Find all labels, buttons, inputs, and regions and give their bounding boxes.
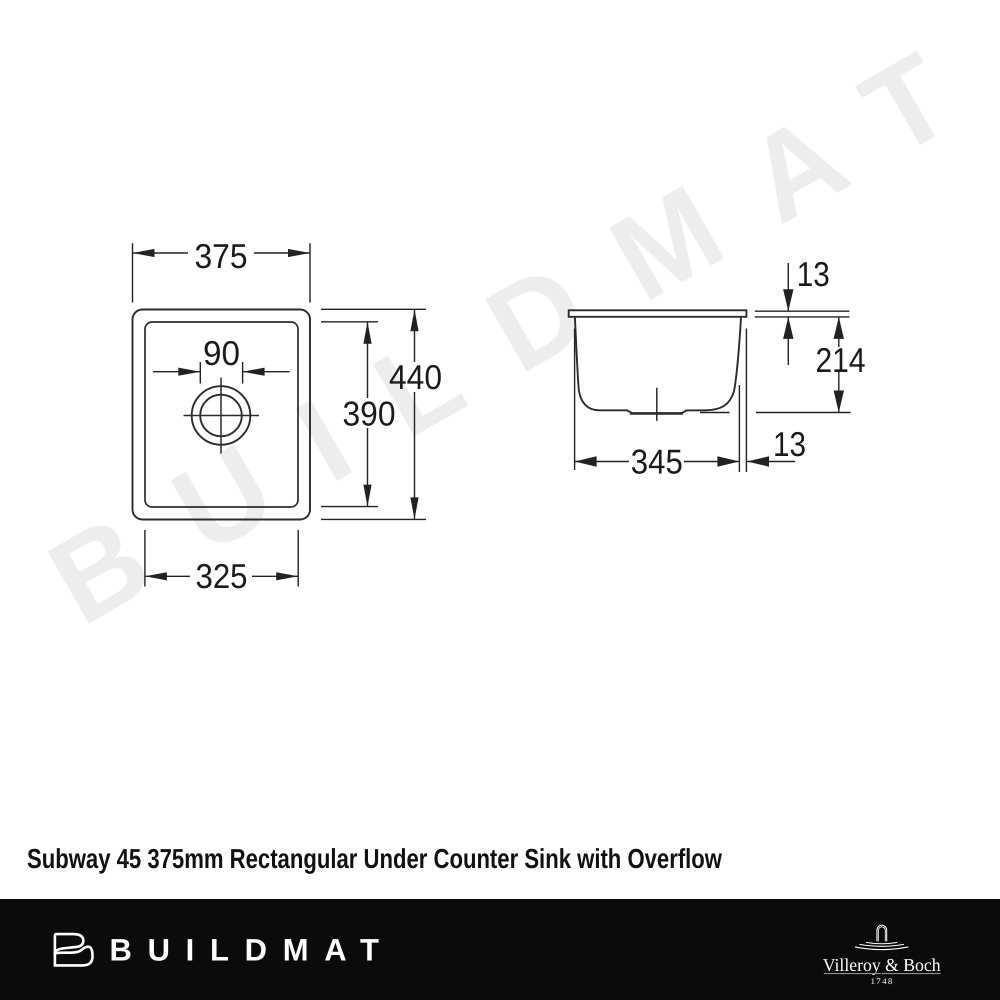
svg-text:BUILDMAT: BUILDMAT	[110, 933, 395, 968]
svg-text:90: 90	[203, 335, 240, 373]
svg-text:214: 214	[816, 342, 866, 380]
svg-text:375: 375	[195, 238, 248, 276]
svg-text:13: 13	[797, 256, 830, 294]
svg-text:13: 13	[773, 426, 806, 464]
svg-text:440: 440	[389, 359, 442, 397]
svg-text:390: 390	[343, 395, 396, 433]
svg-text:325: 325	[196, 558, 248, 596]
svg-text:Subway 45 375mm Rectangular Un: Subway 45 375mm Rectangular Under Counte…	[27, 843, 722, 874]
svg-text:1748: 1748	[871, 976, 894, 986]
svg-text:345: 345	[631, 443, 683, 481]
svg-text:Villeroy & Boch: Villeroy & Boch	[823, 955, 941, 975]
